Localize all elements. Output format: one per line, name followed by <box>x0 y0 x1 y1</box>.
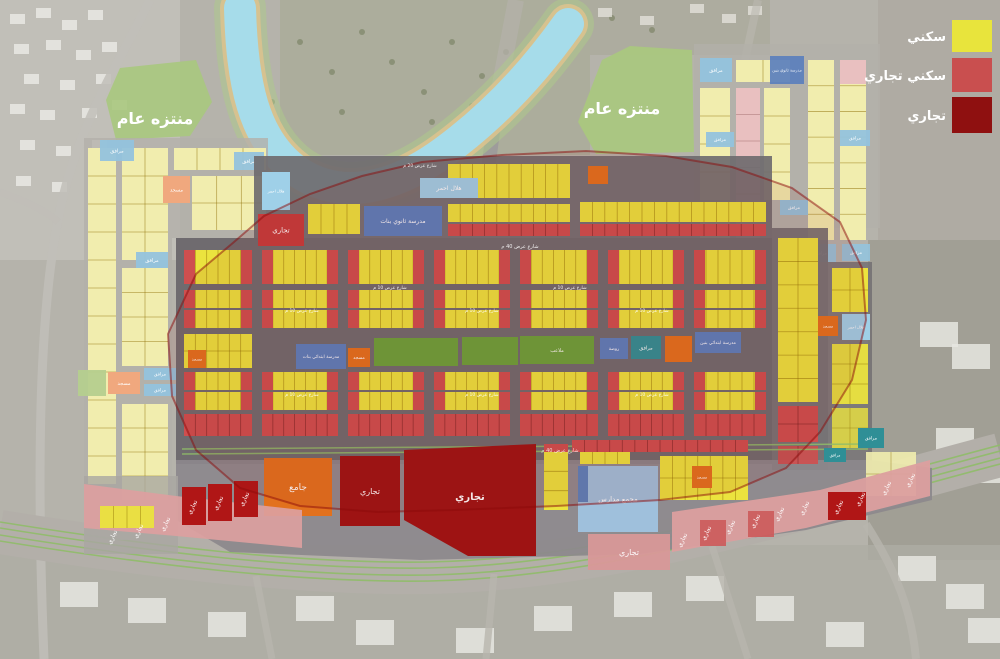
trees <box>649 27 655 33</box>
mosque-block: مسجد <box>118 381 131 387</box>
facilities-block: مرافق <box>709 68 723 74</box>
buildings <box>60 582 98 607</box>
facilities-block: مرافق <box>714 138 727 143</box>
buildings <box>722 14 736 23</box>
street-label: شارع عرض 20 م <box>403 163 437 169</box>
buildings <box>296 596 334 621</box>
legend-swatch-commercial <box>952 97 992 133</box>
buildings <box>946 584 984 609</box>
street-label: شارع عرض 10 م <box>553 285 587 291</box>
mixed-lot <box>840 60 866 84</box>
facilities-block: مرافق <box>849 137 862 142</box>
trees <box>359 29 365 35</box>
street-label: شارع عرض 10 م <box>465 392 499 398</box>
trees <box>421 89 427 95</box>
buildings <box>24 74 39 84</box>
legend-label: سكني <box>907 30 946 45</box>
trees <box>339 109 345 115</box>
trees <box>389 59 395 65</box>
buildings <box>756 596 794 621</box>
buildings <box>62 20 77 30</box>
facilities-block: مرافق <box>242 159 256 165</box>
facilities-block: مرافق <box>865 437 878 442</box>
street-label: شارع عرض 10 م <box>285 392 319 398</box>
facilities-block: مرافق <box>830 452 841 457</box>
buildings <box>46 40 61 50</box>
buildings <box>102 42 117 52</box>
buildings <box>898 556 936 581</box>
residential-lots <box>840 60 866 240</box>
facilities-block: مرافق <box>154 389 167 394</box>
facilities-block: مرافق <box>145 258 159 264</box>
legend-label: تجاري <box>907 109 946 124</box>
buildings <box>88 10 103 20</box>
park-label: منتزه عام <box>584 99 661 118</box>
trees <box>449 39 455 45</box>
buildings <box>614 592 652 617</box>
trees <box>297 39 303 45</box>
street-label: شارع عرض 10 م <box>635 308 669 314</box>
zoning-map: مرافقمرافقمسجدمرافقمسجدمرافقمرافقمرافقمد… <box>0 0 1000 659</box>
buildings <box>356 620 394 645</box>
terrain-hills <box>868 240 1000 560</box>
street-label: شارع عرض 10 م <box>373 285 407 291</box>
buildings <box>56 146 71 156</box>
legend-swatch-residential <box>952 20 992 52</box>
buildings <box>60 80 75 90</box>
buildings <box>826 622 864 647</box>
buildings <box>968 618 1000 643</box>
buildings <box>952 344 990 369</box>
buildings <box>14 44 29 54</box>
legend-swatch-residential-commercial <box>952 58 992 92</box>
facilities-block: مرافق <box>154 373 167 378</box>
buildings <box>598 8 612 17</box>
street-label: شارع عرض 40 م <box>501 244 538 250</box>
buildings <box>10 104 25 114</box>
buildings <box>534 606 572 631</box>
street-label: شارع عرض 40 م <box>541 448 578 454</box>
buildings <box>640 16 654 25</box>
trees <box>329 69 335 75</box>
street-label: شارع عرض 10 م <box>635 392 669 398</box>
green-block <box>78 370 106 396</box>
facilities-block: مرافق <box>110 148 124 154</box>
buildings <box>10 14 25 24</box>
buildings <box>208 612 246 637</box>
red-crescent-block: هلال احمر <box>267 188 285 193</box>
buildings <box>686 576 724 601</box>
commercial-block: تجاري <box>619 548 639 557</box>
buildings <box>36 8 51 18</box>
street-label: شارع عرض 10 م <box>285 308 319 314</box>
buildings <box>690 4 704 13</box>
trees <box>429 119 435 125</box>
buildings <box>128 598 166 623</box>
zoning-map-page: مرافقمرافقمسجدمرافقمسجدمرافقمرافقمرافقمد… <box>0 0 1000 659</box>
park-label: منتزه عام <box>117 109 194 128</box>
buildings <box>40 110 55 120</box>
buildings <box>920 322 958 347</box>
trees <box>479 73 485 79</box>
mosque-block: مسجد <box>170 187 183 193</box>
school-block: مدرسة ثانوي بنين <box>772 67 801 72</box>
buildings <box>16 176 31 186</box>
legend-label: سكني تجاري <box>864 69 946 84</box>
street-label: شارع عرض 10 م <box>465 308 499 314</box>
buildings <box>76 50 91 60</box>
buildings <box>20 140 35 150</box>
